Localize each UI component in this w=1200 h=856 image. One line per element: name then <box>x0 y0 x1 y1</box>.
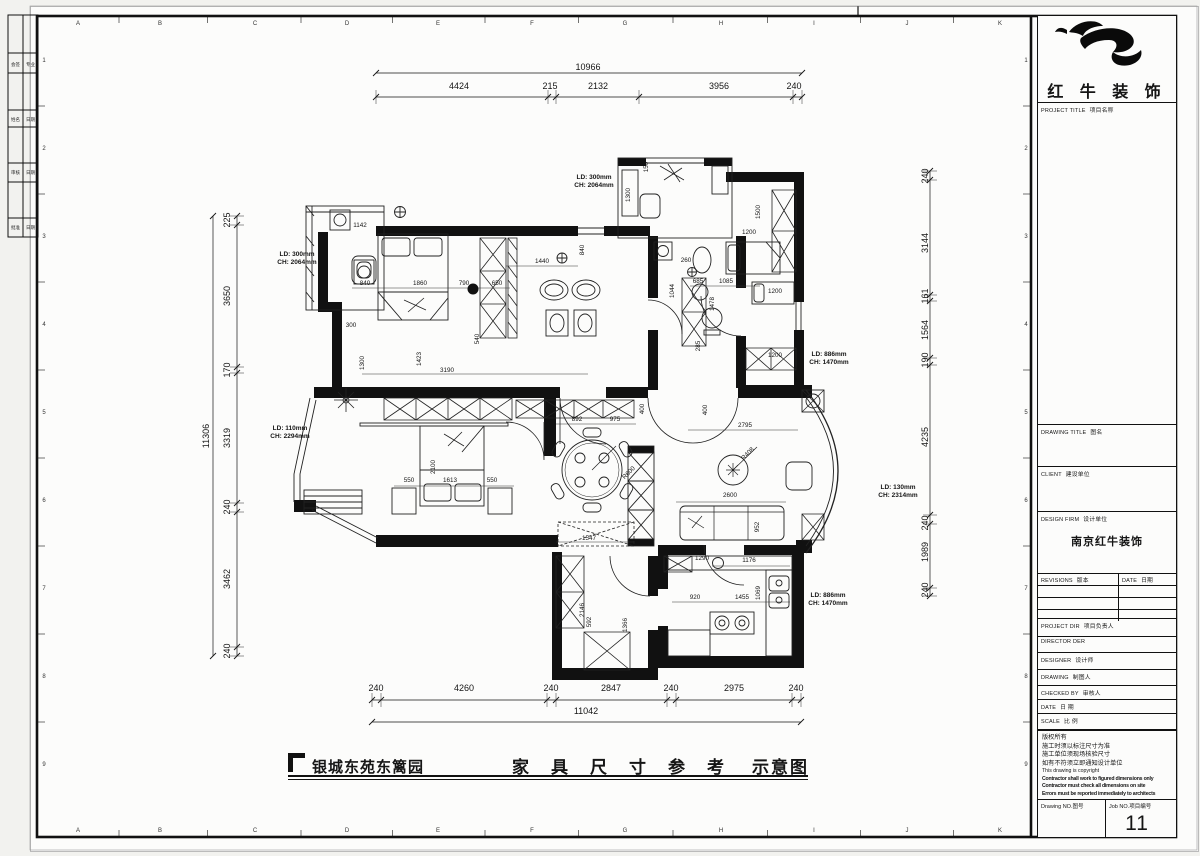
chain-dim-label: 11042 <box>574 706 598 716</box>
grid-letter-top: B <box>158 21 162 27</box>
dim-label: 1860 <box>413 280 428 287</box>
grid-number-left: 5 <box>42 410 46 416</box>
design-firm-value: 南京红牛装饰 <box>1038 533 1176 549</box>
floorplan-canvas: 1096644242152132395624024042602402847240… <box>0 0 1200 856</box>
grid-number-right: 4 <box>1024 322 1028 328</box>
chain-dim-label: 4260 <box>454 683 474 693</box>
grid-letter-bottom: H <box>719 828 723 834</box>
dim-label: 3190 <box>440 367 455 374</box>
dim-label: 1440 <box>535 258 550 265</box>
ld-ch-annotation: CH: 2064mm <box>277 259 317 266</box>
grid-letter-bottom: D <box>345 828 350 834</box>
grid-number-right: 2 <box>1024 146 1028 152</box>
dim-label: 2100 <box>430 460 437 475</box>
grid-number-right: 9 <box>1024 762 1028 768</box>
sign-strip-cell: 姓名 <box>11 116 20 123</box>
dim-label: 1613 <box>443 477 458 484</box>
chain-dim-label: 240 <box>222 499 232 514</box>
ld-ch-annotation: LD: 130mm <box>880 484 915 491</box>
ld-ch-annotation: LD: 886mm <box>810 592 845 599</box>
grid-letter-bottom: K <box>998 828 1002 834</box>
chain-dim-label: 240 <box>786 81 801 91</box>
chain-dim-label: 1989 <box>920 542 930 562</box>
dim-label: 592 <box>586 616 593 627</box>
doors <box>506 296 744 596</box>
dim-label: 1300 <box>625 188 632 203</box>
field-project-dir: PROJECT DIR项目负责人 <box>1038 619 1176 630</box>
grid-letter-bottom: J <box>906 828 909 834</box>
sign-strip-cell: 审核 <box>11 169 20 176</box>
dim-label: 2600 <box>723 492 738 499</box>
dim-label: 540 <box>474 333 481 344</box>
grid-letter-top: D <box>345 21 350 27</box>
grid-letter-top: I <box>813 21 815 27</box>
grid-letter-top: F <box>530 21 534 27</box>
dim-label: 550 <box>404 477 415 484</box>
dim-label: 650 <box>492 280 503 287</box>
grid-number-left: 2 <box>42 146 46 152</box>
field-drawing-title: DRAWING TITLE图名 <box>1038 425 1176 436</box>
grid-letter-top: H <box>719 21 723 27</box>
chain-dim-label: 240 <box>920 515 930 530</box>
chain-dim-label: 240 <box>920 168 930 183</box>
generated-layer: 1096644242152132395624024042602402847240… <box>11 15 1031 838</box>
chain-dim-label: 215 <box>542 81 557 91</box>
dim-label: 285 <box>695 340 702 351</box>
drawing-number-value: 11 <box>1106 812 1168 836</box>
title-block: 红 牛 装 饰 PROJECT TITLE项目名称 DRAWING TITLE图… <box>1037 15 1177 838</box>
field-project-title: PROJECT TITLE项目名称 <box>1038 103 1176 114</box>
sign-strip <box>8 15 38 237</box>
chain-dim-label: 240 <box>788 683 803 693</box>
dim-label: 1300 <box>359 356 366 371</box>
grid-letter-bottom: A <box>76 828 80 834</box>
chain-dim-label: 240 <box>663 683 678 693</box>
field-design-firm: DESIGN FIRM设计单位 <box>1038 512 1176 523</box>
grid-letter-bottom: C <box>253 828 258 834</box>
sign-strip-cell: 日期 <box>26 225 35 231</box>
dim-label: 975 <box>610 416 621 423</box>
grid-number-left: 9 <box>42 762 46 768</box>
dim-label: 2146 <box>579 603 586 618</box>
dim-label: 790 <box>459 280 470 287</box>
chain-dim-label: 1564 <box>920 320 930 340</box>
sign-strip-cell: 批准 <box>11 224 20 231</box>
ld-ch-annotation: CH: 1470mm <box>808 600 848 607</box>
chain-dim-label: 240 <box>222 643 232 658</box>
dim-label: R600 <box>621 465 637 481</box>
grid-number-right: 6 <box>1024 498 1028 504</box>
dim-label: 1478 <box>709 297 716 312</box>
grid-number-left: 7 <box>42 586 46 592</box>
grid-number-left: 6 <box>42 498 46 504</box>
field-checked-by: CHECKED BY审核人 <box>1038 686 1176 697</box>
ld-ch-annotation: LD: 886mm <box>811 351 846 358</box>
chain-dim-label: 3650 <box>222 286 232 306</box>
grid-letter-bottom: F <box>530 828 534 834</box>
field-scale: SCALE比 例 <box>1038 714 1176 725</box>
grid-letter-top: E <box>436 21 440 27</box>
chain-dim-label: 2975 <box>724 683 744 693</box>
dim-label: 892 <box>572 416 583 423</box>
chain-dim-label: 3319 <box>222 428 232 448</box>
dim-label: 1500 <box>755 205 762 220</box>
grid-letter-bottom: I <box>813 828 815 834</box>
grid-number-left: 4 <box>42 322 46 328</box>
dim-label: 1142 <box>353 222 367 229</box>
logo-box: 红 牛 装 饰 <box>1038 16 1176 103</box>
dim-label: R408 <box>740 446 756 462</box>
ld-ch-annotation: CH: 2314mm <box>878 492 918 499</box>
chain-dim-label: 4424 <box>449 81 469 91</box>
dim-label: 1176 <box>742 557 756 564</box>
sign-strip-cell: 专业 <box>26 61 35 68</box>
chain-dim-label: 240 <box>920 582 930 597</box>
chain-dim-label: 240 <box>543 683 558 693</box>
dim-lines <box>352 266 798 602</box>
chain-dim-label: 4235 <box>920 427 930 447</box>
chain-dim-label: 11306 <box>201 424 211 448</box>
field-designer: DESIGNER设计师 <box>1038 653 1176 664</box>
ld-ch-annotation: CH: 2294mm <box>270 433 310 440</box>
dim-label: 1200 <box>742 229 757 236</box>
dim-label: 600 <box>736 376 743 387</box>
dim-label: 840 <box>579 244 586 255</box>
chain-dim-label: 161 <box>920 288 930 303</box>
field-director: DIRECTOR DER <box>1038 637 1176 645</box>
sign-strip-cell: 日期 <box>26 117 35 123</box>
dim-label: 400 <box>702 404 709 415</box>
dim-label: 1200 <box>768 352 783 359</box>
chain-dim-label: 240 <box>368 683 383 693</box>
grid-letter-top: J <box>906 21 909 27</box>
dim-label: 400 <box>639 403 646 414</box>
grid-letter-top: A <box>76 21 80 27</box>
bull-logo-icon <box>1039 16 1175 74</box>
brand-name: 红 牛 装 饰 <box>1038 78 1176 102</box>
dim-label: 685 <box>693 278 704 285</box>
grid-letter-top: C <box>253 21 258 27</box>
chain-dim-label: 3462 <box>222 569 232 589</box>
dim-label: 260 <box>681 257 692 264</box>
grid-letter-bottom: E <box>436 828 440 834</box>
walls <box>294 158 812 680</box>
dim-label: 550 <box>487 477 498 484</box>
chain-dim-label: 2132 <box>588 81 608 91</box>
grid-number-left: 8 <box>42 674 46 680</box>
grid-number-right: 5 <box>1024 410 1028 416</box>
dim-label: 1069 <box>755 586 762 601</box>
field-drawing-no: Drawing NO.图号 <box>1038 800 1106 837</box>
dim-label: 952 <box>754 521 761 532</box>
ld-ch-annotation: LD: 110mm <box>273 425 308 432</box>
dim-label: 1290 <box>695 555 710 562</box>
field-drawing-by: DRAWING制图人 <box>1038 670 1176 681</box>
dim-label: 1200 <box>768 288 783 295</box>
chain-dim-label: 3144 <box>920 233 930 253</box>
dim-label: 150 <box>643 161 650 172</box>
dim-label: 1455 <box>735 594 750 601</box>
dim-label: 1044 <box>669 284 676 299</box>
field-client: CLIENT建设单位 <box>1038 467 1176 478</box>
chain-dim-label: 225 <box>222 212 232 227</box>
ld-ch-annotation: LD: 300mm <box>576 174 611 181</box>
revisions-table: REVISIONS版本 DATE日期 <box>1038 574 1176 619</box>
ld-ch-annotation: LD: 300mm <box>279 251 314 258</box>
sign-strip-cell: 会签 <box>11 61 20 68</box>
sign-strip-cell: 日期 <box>26 170 35 176</box>
dim-label: 1366 <box>622 618 629 633</box>
chain-dim-label: 190 <box>920 352 930 367</box>
grid-number-right: 1 <box>1024 58 1028 64</box>
grid-number-right: 3 <box>1024 234 1028 240</box>
grid-letter-bottom: G <box>623 828 628 834</box>
ld-ch-annotation: CH: 1470mm <box>809 359 849 366</box>
dim-label: 300 <box>346 322 357 329</box>
grid-number-right: 8 <box>1024 674 1028 680</box>
dim-label: 840 <box>360 280 371 287</box>
chain-dim-label: 170 <box>222 362 232 377</box>
field-job-no: Job NO.项目编号 11 <box>1106 800 1176 837</box>
grid-number-right: 7 <box>1024 586 1028 592</box>
grid-letter-top: K <box>998 21 1002 27</box>
grid-letter-bottom: B <box>158 828 162 834</box>
chain-dim-label: 3956 <box>709 81 729 91</box>
dim-label: 1085 <box>719 278 734 285</box>
field-date: DATE日 期 <box>1038 700 1176 711</box>
dim-label: 1547 <box>582 535 597 542</box>
ld-ch-annotation: CH: 2064mm <box>574 182 614 189</box>
grid-letter-top: G <box>623 21 628 27</box>
copyright-notes: 版权所有 施工时须以标注尺寸为准 施工单位须现场核验尺寸 如有不符须立即通知设计… <box>1038 729 1176 799</box>
dim-label: 920 <box>690 594 701 601</box>
chain-dim-label: 10966 <box>575 62 600 72</box>
dim-label: 2795 <box>738 422 753 429</box>
dim-label: 1423 <box>416 352 423 367</box>
grid-number-left: 1 <box>42 58 46 64</box>
grid-number-left: 3 <box>42 234 46 240</box>
chain-dim-label: 2847 <box>601 683 621 693</box>
